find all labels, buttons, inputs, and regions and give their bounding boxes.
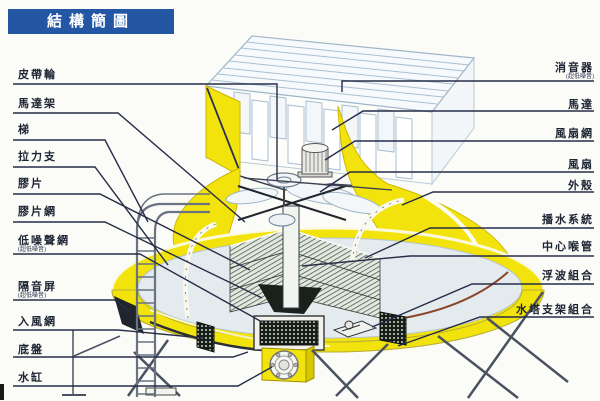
label-outer-shell: 外殼	[568, 180, 594, 192]
cooling-tower-illustration	[0, 0, 600, 401]
label-water-tank: 水缸	[18, 372, 44, 384]
label-water-distribution: 播水系統	[542, 214, 594, 226]
label-air-inlet-mesh: 入風網	[18, 316, 57, 328]
page-title: 結構簡圖	[8, 9, 174, 34]
label-tension-support: 拉力支	[18, 151, 57, 163]
label-center-pipe: 中心喉管	[542, 241, 594, 253]
label-tower-support: 水塔支架組合	[516, 304, 594, 316]
label-muffler: 消音器(超低噪音)	[555, 62, 594, 80]
label-sound-screen: 隔音屏(超低噪音)	[18, 281, 57, 299]
scan-artifact	[0, 384, 4, 400]
label-belt-pulley: 皮帶輪	[18, 69, 57, 81]
inlet-mesh-right	[380, 312, 406, 345]
label-motor: 馬達	[568, 99, 594, 111]
motor	[298, 144, 332, 178]
structure-diagram-page: 結構簡圖	[0, 0, 600, 401]
label-base-plate: 底盤	[18, 344, 44, 356]
outlet-flange	[262, 346, 314, 382]
label-motor-frame: 馬達架	[18, 98, 57, 110]
label-fill-sheet: 膠片	[18, 178, 44, 190]
label-low-noise-net: 低噪聲網(超低噪音)	[18, 235, 70, 253]
label-fan: 風扇	[568, 159, 594, 171]
label-fan-mesh: 風扇網	[555, 128, 594, 140]
label-float-assembly: 浮波組合	[542, 270, 594, 282]
label-ladder: 梯	[18, 124, 31, 136]
outlet-strainer-box	[254, 316, 324, 350]
label-fill-mesh: 膠片網	[18, 206, 57, 218]
